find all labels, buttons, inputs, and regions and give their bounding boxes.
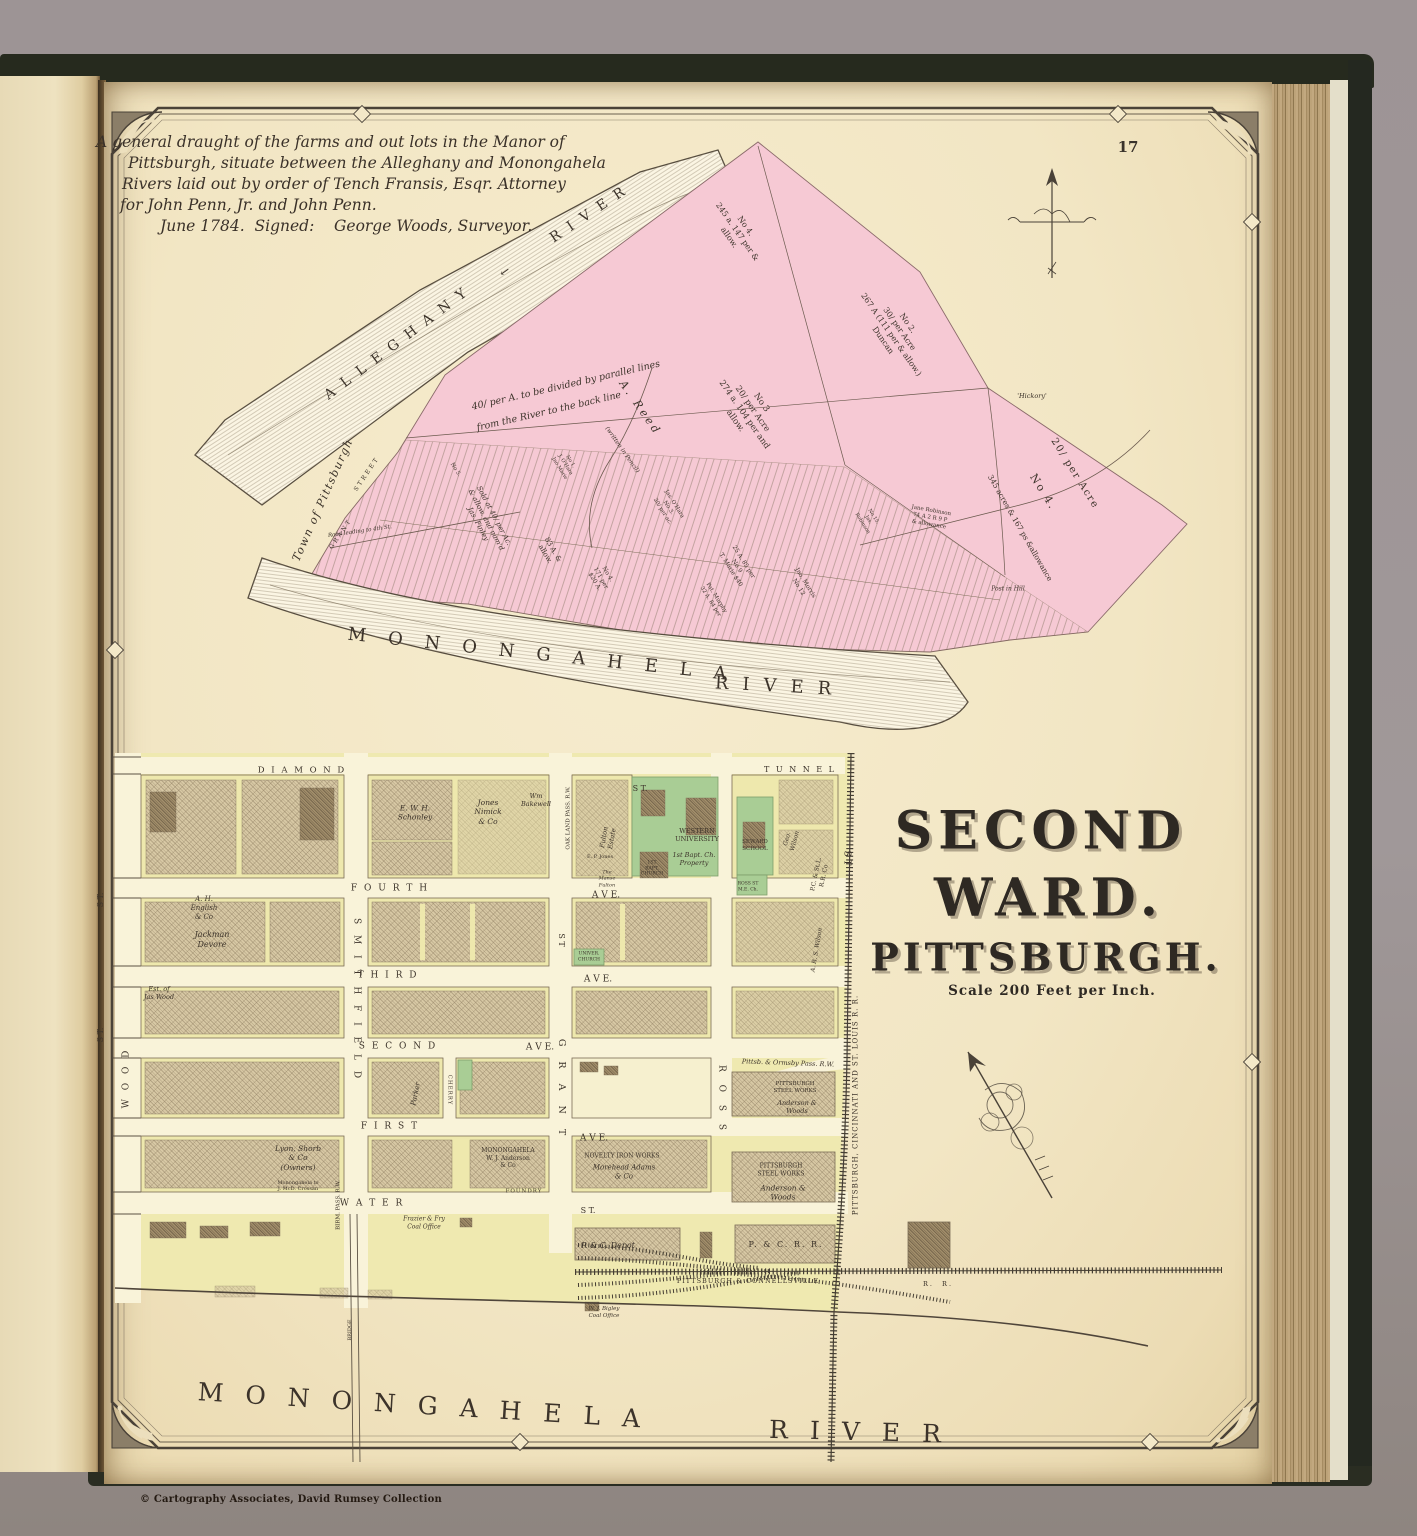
seward-school: SEWARD SCHOOL xyxy=(742,839,768,853)
owner-parker: Parker xyxy=(409,1082,422,1107)
street-diamond-st: S T. xyxy=(633,784,648,794)
owner-schonley: E. W. H. Schonley xyxy=(398,804,433,823)
rr-birm-pass: BIRM. PASS. R.W. xyxy=(336,1180,343,1230)
street-first: F I R S T xyxy=(361,1121,419,1132)
street-third-ave: A V E. xyxy=(584,974,612,985)
owner-lyon-shorb: Lyon, Shorb & Co (Owners) xyxy=(275,1144,321,1172)
bapt-property: 1st Bapt. Ch. Property xyxy=(673,851,716,867)
steel-works-upper: PITTSBURGH STEEL WORKS xyxy=(773,1081,816,1095)
owner-bakewell: Wm Bakewell xyxy=(521,792,551,808)
ross-st-me-church: ROSS ST M.E. Ch. xyxy=(738,881,759,892)
street-grant: G R A N T xyxy=(555,1039,567,1141)
foundry-word: FOUNDRY xyxy=(506,1189,543,1196)
street-cherry: CHERRY xyxy=(446,1075,453,1106)
steel-works-upper-owner: Anderson & Woods xyxy=(777,1099,816,1115)
frazier-coal: Frazier & Fry Coal Office xyxy=(403,1216,445,1231)
street-third: T H I R D xyxy=(358,970,419,981)
western-university: WESTERN UNIVERSITY xyxy=(675,827,719,843)
rr-pcsl: PITTSBURGH, CINCINNATI AND ST. LOUIS R. … xyxy=(852,995,861,1215)
street-ross: R O S S xyxy=(715,1065,726,1135)
lower-map-labels: D I A M O N DS T.F O U R T HA V E.T H I … xyxy=(0,0,1417,1536)
owner-crossan: Monongahela to J. McD. Crossan xyxy=(277,1180,318,1193)
street-wood: W O O D xyxy=(121,1048,132,1109)
steel-works-lower-owner: Anderson & Woods xyxy=(760,1184,805,1203)
street-first-ave: A V E. xyxy=(580,1133,608,1144)
bridge-note: BRIDGE xyxy=(347,1319,353,1340)
anderson-foundry: MONONGAHELA W. J. Anderson & Co xyxy=(481,1147,535,1170)
owner-ep-jones: E. P. Jones xyxy=(587,854,613,860)
street-water-st: S T. xyxy=(581,1206,596,1216)
owner-ars-wilson: A. R. S. Wilson xyxy=(809,927,824,972)
collection-copyright: © Cartography Associates, David Rumsey C… xyxy=(140,1494,442,1505)
street-smithfield: S M I T H F I E L D xyxy=(350,918,361,1082)
river-lower: RIVER xyxy=(769,1414,964,1450)
rr-ormsby-pass: Pittsb. & Ormsby Pass. R.W. xyxy=(742,1057,835,1068)
novelty-iron-works: NOVELTY IRON WORKS xyxy=(584,1152,659,1160)
bigley-coal: W. J. Bigley Coal Office xyxy=(589,1306,620,1320)
bapt-church: 1ST BAPT. CHURCH xyxy=(641,860,663,877)
rr-pc-rr: R. R. xyxy=(923,1280,953,1288)
owner-geo-wilson: Geo. Wilson xyxy=(781,828,801,852)
rr-pc-connellsville: PITTSBURGH & CONNELLSVILLE xyxy=(677,1277,819,1285)
street-fourth-ave: A V E. xyxy=(592,890,620,901)
owner-manse-fulton: The Manse Fulton xyxy=(599,870,616,889)
owner-jas-wood: Est. of Jas Wood xyxy=(144,985,174,1001)
street-wood-st: S T. xyxy=(96,893,106,908)
morehead-adams: Morehead Adams & Co xyxy=(593,1163,655,1181)
street-second: S E C O N D xyxy=(359,1041,437,1052)
street-water: W A T E R xyxy=(340,1198,405,1209)
owner-jackman-devore: Jackman Devore xyxy=(195,930,230,950)
owner-english: A. H. English & Co xyxy=(191,895,218,921)
street-second-ave: A V E. xyxy=(526,1042,554,1053)
pc-depot: P. & C. Depot xyxy=(581,1241,635,1251)
pc-rr-building: P. & C. R. R. xyxy=(748,1240,823,1250)
rr-pcsl-co: P.C. & St.L. R.R. Co xyxy=(809,857,831,894)
steel-works-lower: PITTSBURGH STEEL WORKS xyxy=(758,1163,805,1178)
rr-oakland-pass: OAK LAND PASS. R.W. xyxy=(566,786,573,849)
street-tunnel: T U N N E L xyxy=(764,765,836,775)
univer-church: UNIVER. CHURCH xyxy=(578,951,600,962)
street-fourth: F O U R T H xyxy=(351,883,429,894)
street-diamond: D I A M O N D xyxy=(258,766,346,777)
scanned-atlas-page: { "page": { "number": "17", "copyright":… xyxy=(0,0,1417,1536)
street-st-rr: S T xyxy=(840,850,851,865)
owner-fulton-estate: Fulton Estate xyxy=(598,826,618,850)
street-grant-st: S T xyxy=(556,933,566,946)
monongahela-lower: MONONGAHELA xyxy=(197,1376,663,1436)
street-st-left: S T. xyxy=(96,1028,106,1043)
owner-nimick: Jones Nimick & Co xyxy=(474,798,501,826)
